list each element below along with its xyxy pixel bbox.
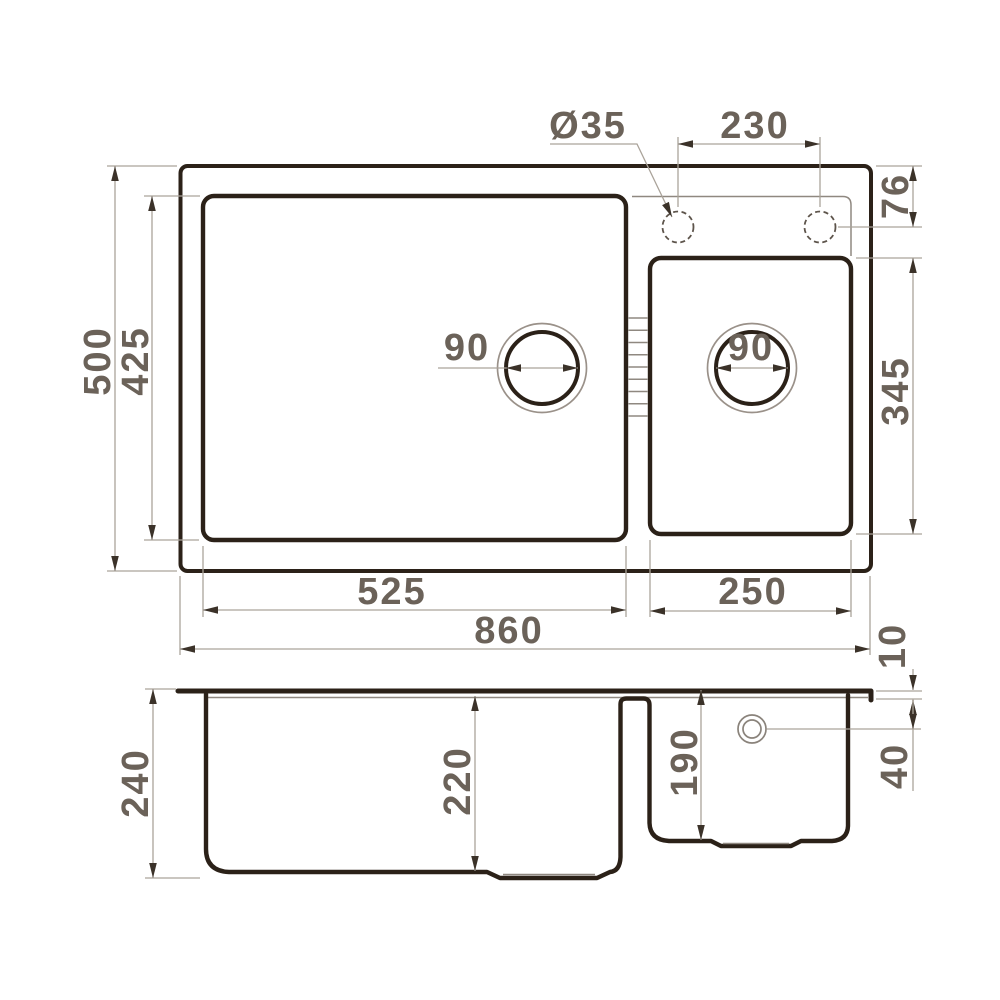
- section-view: 240 220 190 10 40: [115, 623, 922, 878]
- top-view: 90 90 500 425 Ø35: [77, 105, 922, 655]
- dim-main-bowl-width: 525: [203, 546, 626, 617]
- dim-small-bowl-inner-depth: 190: [664, 690, 706, 840]
- dim-rim-thickness: 10: [872, 623, 922, 721]
- section-rim-top: [178, 691, 871, 700]
- faucet-spacing-label: 230: [720, 105, 789, 147]
- overall-width-label: 860: [474, 610, 543, 652]
- deck-recess-edge: [632, 197, 851, 257]
- faucet-hole-left: [663, 212, 694, 243]
- small-bowl-inner-depth-label: 190: [664, 727, 706, 796]
- small-bowl-width-label: 250: [718, 571, 787, 613]
- main-drain: 90: [438, 324, 587, 413]
- dim-faucet-spacing: 230: [678, 105, 820, 207]
- dim-main-bowl-depth: 425: [115, 196, 200, 540]
- dim-faucet-hole-diameter: Ø35: [549, 105, 672, 217]
- main-bowl-width-label: 525: [357, 571, 426, 613]
- small-drain-diameter-label: 90: [728, 327, 774, 369]
- rim-thickness-label: 10: [872, 623, 914, 669]
- overflow-offset-label: 40: [874, 743, 916, 789]
- overflow-hole: [738, 715, 921, 743]
- dim-total-height: 240: [115, 689, 200, 878]
- overflow-channel-hatch: [629, 318, 648, 416]
- dim-overflow-offset: 40: [874, 699, 916, 791]
- total-height-label: 240: [115, 748, 157, 817]
- main-drain-diameter-label: 90: [444, 327, 490, 369]
- dim-small-bowl-depth: 345: [856, 258, 922, 534]
- overall-depth-label: 500: [77, 326, 119, 395]
- small-bowl-depth-label: 345: [875, 356, 917, 425]
- main-bowl-inner-depth-label: 220: [437, 746, 479, 815]
- faucet-hole-right: [805, 212, 836, 243]
- sink-dimension-drawing: 90 90 500 425 Ø35: [0, 0, 1000, 1000]
- faucet-hole-diameter-label: Ø35: [549, 105, 627, 147]
- small-bowl: [650, 258, 851, 534]
- dim-main-bowl-inner-depth: 220: [437, 696, 479, 871]
- main-bowl-depth-label: 425: [115, 326, 157, 395]
- faucet-offset-label: 76: [875, 173, 917, 219]
- small-drain: 90: [708, 324, 797, 413]
- dim-small-bowl-width: 250: [650, 540, 851, 617]
- drawing-canvas: 90 90 500 425 Ø35: [0, 0, 1000, 1000]
- section-bowls-profile: [206, 694, 848, 878]
